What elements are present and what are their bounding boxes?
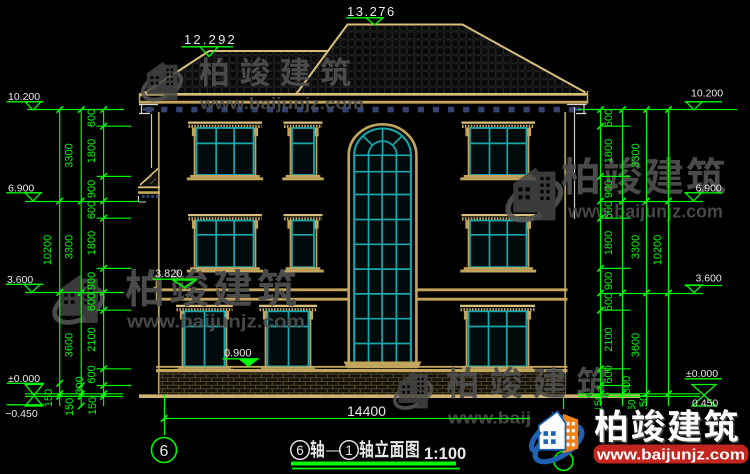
svg-text:900: 900 bbox=[86, 180, 98, 198]
svg-text:600: 600 bbox=[86, 365, 98, 383]
svg-text:6: 6 bbox=[296, 443, 304, 458]
svg-text:150: 150 bbox=[87, 397, 99, 415]
svg-text:300: 300 bbox=[74, 376, 86, 394]
svg-text:150: 150 bbox=[64, 398, 76, 416]
svg-text:2100: 2100 bbox=[603, 327, 615, 351]
svg-text:12.292: 12.292 bbox=[184, 32, 237, 47]
svg-text:600: 600 bbox=[603, 365, 615, 383]
svg-text:www.baijunjz.com: www.baijunjz.com bbox=[567, 201, 723, 222]
svg-text:3600: 3600 bbox=[630, 333, 642, 357]
svg-text:0.900: 0.900 bbox=[224, 348, 252, 360]
svg-text:—: — bbox=[326, 442, 341, 459]
svg-text:600: 600 bbox=[603, 109, 615, 127]
svg-text:10.200: 10.200 bbox=[691, 88, 723, 100]
svg-text:1800: 1800 bbox=[86, 139, 98, 163]
svg-text:600: 600 bbox=[86, 201, 98, 219]
svg-text:3.600: 3.600 bbox=[696, 273, 722, 285]
svg-text:3.820: 3.820 bbox=[155, 268, 183, 280]
svg-text:2100: 2100 bbox=[86, 327, 98, 351]
svg-text:14400: 14400 bbox=[347, 403, 386, 419]
svg-text:3300: 3300 bbox=[64, 235, 76, 259]
svg-text:6: 6 bbox=[160, 443, 169, 460]
svg-text:3300: 3300 bbox=[630, 143, 642, 167]
svg-text:1: 1 bbox=[345, 443, 353, 458]
svg-text:1800: 1800 bbox=[603, 139, 615, 163]
svg-text:600: 600 bbox=[603, 293, 615, 311]
svg-text:900: 900 bbox=[603, 180, 615, 198]
svg-text:1800: 1800 bbox=[603, 231, 615, 255]
svg-text:3300: 3300 bbox=[630, 235, 642, 259]
svg-text:900: 900 bbox=[603, 272, 615, 290]
svg-text:1:100: 1:100 bbox=[424, 445, 466, 463]
svg-text:50: 50 bbox=[627, 399, 638, 411]
svg-text:300: 300 bbox=[621, 376, 633, 394]
svg-text:900: 900 bbox=[86, 272, 98, 290]
svg-text:3300: 3300 bbox=[64, 143, 76, 167]
svg-text:600: 600 bbox=[86, 109, 98, 127]
svg-text:13.276: 13.276 bbox=[347, 4, 396, 19]
svg-text:3600: 3600 bbox=[64, 333, 76, 357]
svg-text:www.baijunjz.com: www.baijunjz.com bbox=[126, 312, 305, 332]
svg-text:1800: 1800 bbox=[86, 231, 98, 255]
svg-text:150: 150 bbox=[43, 389, 55, 407]
svg-text:600: 600 bbox=[86, 293, 98, 311]
svg-text:www.baijunjz.com: www.baijunjz.com bbox=[199, 94, 364, 113]
svg-text:10200: 10200 bbox=[42, 235, 54, 266]
svg-text:0.450: 0.450 bbox=[692, 398, 718, 410]
svg-text:600: 600 bbox=[603, 201, 615, 219]
svg-text:www.baijunjz.com: www.baijunjz.com bbox=[596, 448, 745, 464]
svg-text:−0.450: −0.450 bbox=[5, 408, 38, 420]
svg-text:10200: 10200 bbox=[652, 235, 664, 266]
